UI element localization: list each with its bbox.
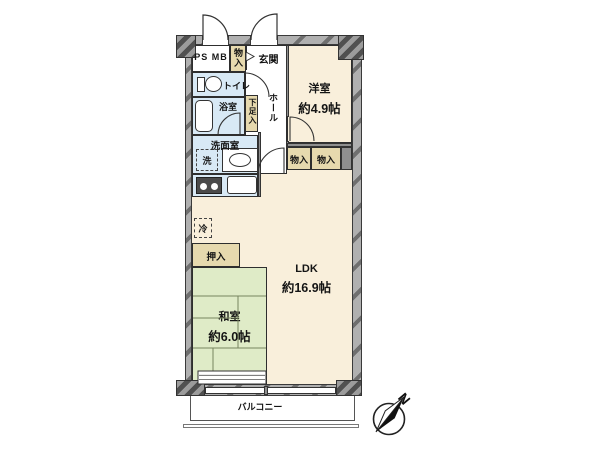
washroom-label: 洗面室	[192, 138, 258, 152]
toilet-bowl	[205, 76, 222, 92]
closet-b-label: 物入	[311, 153, 341, 166]
outer-wall-top-2	[228, 35, 251, 45]
bathtub	[195, 100, 213, 132]
stove	[196, 177, 222, 194]
floorplan: 洗 冷 バルコニー	[0, 0, 600, 450]
ldk-name: LDK	[295, 263, 318, 275]
stove-burner-right	[211, 183, 218, 190]
entrance-label: 玄関	[250, 51, 287, 66]
pillar-bottom-right	[336, 380, 362, 396]
washer-space: 洗	[196, 149, 218, 171]
wall-washroom-hall	[258, 132, 261, 197]
japanese-room-name: 和室	[219, 308, 241, 324]
washstand-sink	[229, 153, 251, 167]
door-arc-meter-box	[203, 15, 228, 40]
washer-label: 洗	[202, 154, 211, 167]
pillar-top-right	[338, 35, 364, 60]
fridge-space: 冷	[194, 218, 212, 238]
door-arc-entrance	[251, 14, 277, 40]
outer-wall-top-3	[277, 35, 345, 45]
pillar-bottom-left	[176, 380, 205, 396]
closet-top-label: 物入	[232, 48, 245, 68]
bath-label: 浴室	[219, 100, 237, 113]
japanese-room-label: 和室 約6.0帖	[192, 308, 267, 345]
western-room-name: 洋室	[309, 80, 331, 96]
shoe-box-label: 下足入	[247, 98, 258, 125]
compass-north-label: N	[395, 390, 414, 408]
outer-wall-left	[185, 45, 192, 384]
toilet-label: トイレ	[223, 79, 250, 92]
hall-label: ホール	[267, 93, 280, 123]
western-room-size: 約4.9帖	[298, 98, 340, 117]
toilet-tank	[197, 77, 205, 92]
western-room-label: 洋室 約4.9帖	[287, 80, 352, 117]
stove-burner-left	[200, 183, 207, 190]
fridge-label: 冷	[198, 222, 207, 235]
balcony-label: バルコニー	[190, 400, 330, 413]
compass-needle-light	[376, 397, 404, 432]
balcony-outer-edge	[183, 424, 359, 428]
compass-needle-dark	[376, 397, 404, 432]
kitchen-sink	[227, 176, 257, 194]
outer-wall-right	[352, 45, 362, 384]
oshiire-label: 押入	[192, 249, 240, 263]
japanese-room-size: 約6.0帖	[208, 326, 250, 345]
window-bottom	[205, 387, 336, 394]
wall-filler-closets	[341, 147, 352, 170]
window-bottom-divider	[264, 386, 268, 395]
ps-mb-label: PS MB	[192, 52, 230, 62]
ldk-label: LDK 約16.9帖	[261, 263, 352, 296]
wall-western-bottom	[287, 143, 352, 147]
compass: N	[374, 390, 414, 435]
ldk-size: 約16.9帖	[282, 277, 331, 296]
closet-a-label: 物入	[287, 153, 311, 166]
compass-circle	[374, 404, 405, 435]
